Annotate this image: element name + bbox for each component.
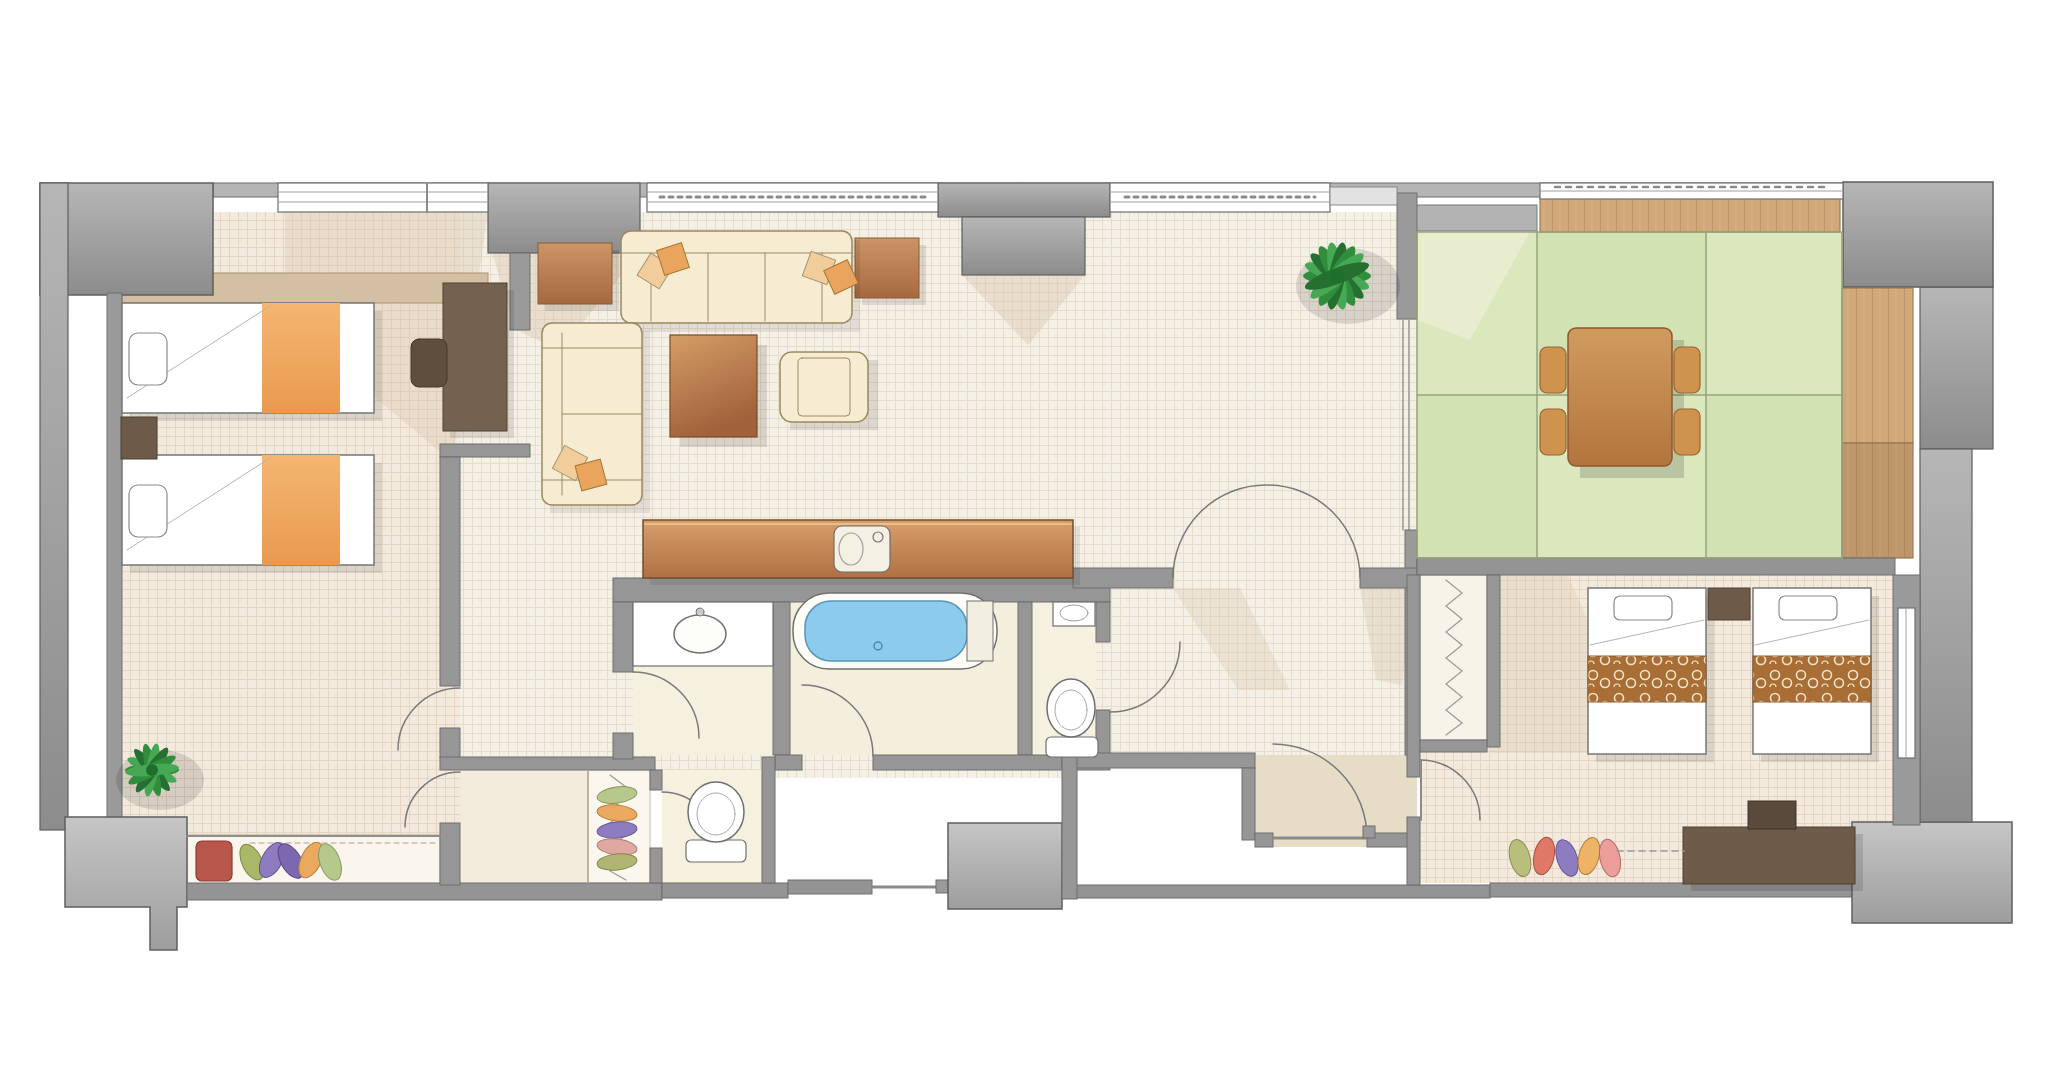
tv-on-dresser bbox=[1748, 801, 1796, 829]
cushion-red bbox=[196, 841, 232, 881]
plant-living-center bbox=[1330, 269, 1344, 283]
vanity-faucet bbox=[696, 608, 704, 616]
wall-bottom-1 bbox=[187, 883, 662, 900]
armchair bbox=[780, 352, 868, 422]
toilet-1-bowl bbox=[688, 782, 744, 842]
wall-corner-sw bbox=[65, 817, 187, 950]
wall-bedroom-east-north bbox=[1417, 558, 1895, 575]
wall-corner-ne bbox=[1843, 182, 1993, 287]
dining-stool-3 bbox=[1674, 347, 1700, 393]
wall-bedroom-east-1 bbox=[440, 457, 460, 686]
entry-alcove-outside bbox=[1077, 768, 1242, 887]
window-bedroom-west bbox=[278, 183, 488, 212]
desk bbox=[443, 283, 507, 431]
toilet-2-basin bbox=[1053, 602, 1095, 626]
wall-entry-left bbox=[788, 880, 872, 894]
wall-washroom-bath bbox=[773, 602, 790, 755]
engawa-wood-deck bbox=[1540, 197, 1840, 232]
entry-porch-block bbox=[948, 823, 1062, 909]
dining-table bbox=[1568, 328, 1672, 466]
coffee-table bbox=[670, 335, 757, 437]
vanity-basin bbox=[674, 615, 726, 653]
dresser bbox=[1683, 827, 1855, 884]
tatami-tint-3 bbox=[1706, 395, 1842, 558]
wall-genkan-left bbox=[1062, 753, 1077, 899]
bathtub-water bbox=[805, 601, 967, 661]
wall-toilet1-west-2 bbox=[650, 848, 662, 883]
bed-3-cover bbox=[1588, 656, 1706, 702]
nightstand-east bbox=[1708, 588, 1750, 620]
bed-4-pillow bbox=[1779, 596, 1837, 620]
bed-1-pillow bbox=[129, 333, 167, 385]
wall-toilet1-east bbox=[762, 757, 775, 883]
nightstand-west bbox=[121, 417, 157, 459]
wall-closet-east-south bbox=[1420, 740, 1487, 752]
dining-stool-4 bbox=[1674, 409, 1700, 455]
floor-plan bbox=[0, 0, 2048, 1080]
toilet-1-tank bbox=[686, 840, 746, 862]
side-cabinet-1 bbox=[538, 243, 612, 304]
wall-column-t-top bbox=[938, 183, 1110, 217]
wall-genkan-south-1 bbox=[1255, 833, 1273, 847]
plant-bedroom-center bbox=[146, 764, 158, 776]
wall-alcove-right bbox=[1242, 768, 1255, 840]
bed-3-pillow bbox=[1614, 596, 1672, 620]
entry-door-stop bbox=[936, 880, 948, 893]
floor-plan-canvas bbox=[0, 0, 2048, 1080]
bed-4-cover bbox=[1753, 656, 1871, 702]
tatami-tint-2 bbox=[1417, 395, 1537, 558]
wall-west-outer bbox=[40, 183, 68, 830]
wall-bottom-3 bbox=[1062, 885, 1490, 898]
wall-wet-south-1 bbox=[775, 755, 802, 770]
wall-closet-east-right bbox=[1487, 575, 1500, 747]
window-living-2-sill bbox=[1330, 187, 1397, 205]
wall-bedroom-east-2 bbox=[440, 728, 460, 758]
wall-bottom-2 bbox=[662, 883, 788, 898]
wall-column-t-stem bbox=[962, 217, 1085, 275]
bed-1-runner bbox=[262, 303, 340, 413]
wall-washroom-west-2 bbox=[613, 733, 633, 759]
front-door-stop bbox=[1363, 826, 1375, 838]
wall-east-2 bbox=[1920, 449, 1972, 822]
side-cabinet-2 bbox=[855, 238, 919, 298]
desk-chair bbox=[411, 339, 447, 387]
wall-closet-east-west-2 bbox=[1407, 817, 1420, 885]
outside-strip-genkan bbox=[1255, 847, 1417, 885]
wall-tatami-west-upper bbox=[1397, 193, 1417, 319]
wall-bedroom-jog bbox=[440, 444, 530, 457]
wall-corner-se bbox=[1852, 822, 2012, 923]
wall-bath-toilet2 bbox=[1018, 602, 1032, 755]
wall-closet-east-west-1 bbox=[1407, 575, 1420, 777]
toilet-2-tank bbox=[1046, 737, 1098, 757]
wall-east-1 bbox=[1920, 287, 1993, 449]
floor-vestibule bbox=[460, 757, 588, 887]
wall-bedroom-west bbox=[107, 293, 122, 822]
tokonoma-wood-lower-shade bbox=[1842, 443, 1913, 558]
dining-stool-1 bbox=[1540, 347, 1566, 393]
wall-toilet1-west-1 bbox=[650, 770, 662, 790]
bed-2-pillow bbox=[129, 485, 167, 537]
wall-washroom-west-1 bbox=[613, 602, 633, 672]
tokonoma-wood-upper bbox=[1842, 288, 1913, 443]
bathtub-seat bbox=[967, 601, 993, 661]
dining-stool-2 bbox=[1540, 409, 1566, 455]
tatami-window-sill bbox=[1412, 205, 1537, 231]
wall-toilet2-east-1 bbox=[1096, 602, 1110, 642]
wall-bedroom-east-3 bbox=[440, 823, 460, 885]
bed-2-runner bbox=[262, 455, 340, 565]
toilet-2-bowl bbox=[1047, 679, 1095, 737]
wall-hall-north bbox=[1073, 568, 1173, 588]
